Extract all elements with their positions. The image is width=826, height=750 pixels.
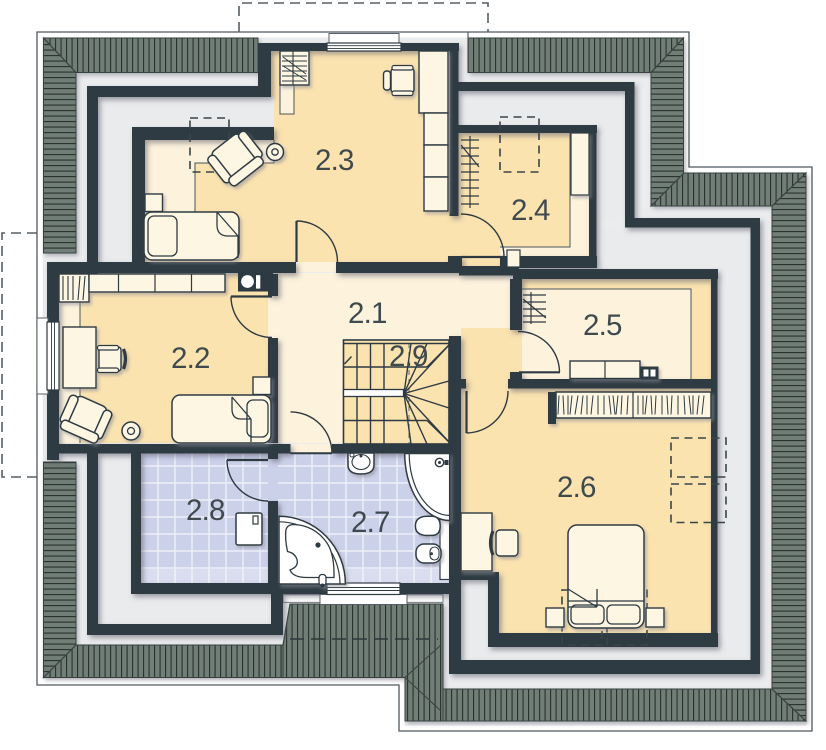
svg-text:2.7: 2.7 <box>351 506 390 539</box>
svg-text:2.8: 2.8 <box>186 494 225 527</box>
svg-text:2.2: 2.2 <box>171 342 210 375</box>
svg-text:2.3: 2.3 <box>315 144 354 177</box>
svg-text:2.4: 2.4 <box>511 194 550 227</box>
svg-text:2.6: 2.6 <box>557 471 596 504</box>
svg-text:2.5: 2.5 <box>583 309 622 342</box>
svg-text:2.1: 2.1 <box>348 297 387 330</box>
svg-text:2.9: 2.9 <box>389 340 428 373</box>
